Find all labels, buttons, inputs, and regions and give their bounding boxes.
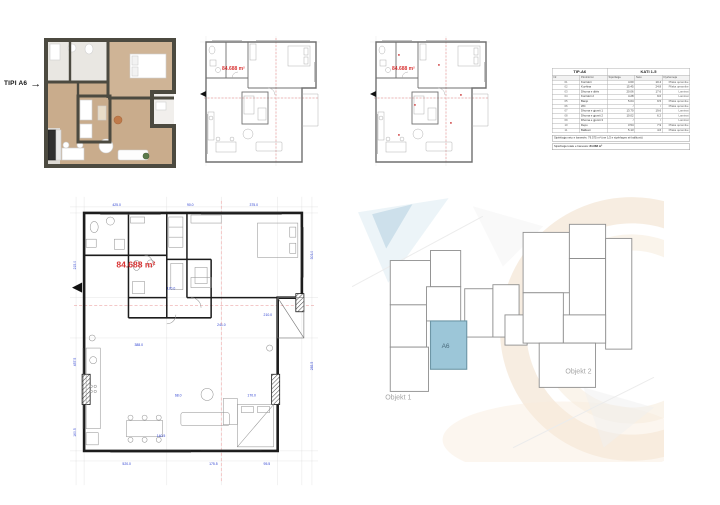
dimension-label: 425.0 bbox=[112, 203, 121, 207]
cad-plan-large-svg: 425.0 90.0 375.0 215.0 457.5 160.5 303.0… bbox=[70, 196, 318, 486]
render-3d-svg bbox=[42, 36, 178, 170]
dimension-label: 140.5 bbox=[157, 434, 166, 438]
unit-a6-highlight[interactable]: A6 bbox=[431, 321, 467, 369]
wall-piers bbox=[82, 294, 304, 405]
spec-table-cell: 11 bbox=[552, 128, 580, 133]
cad-plan-small-2-svg: 84.688 m² bbox=[368, 34, 492, 170]
grid-lines bbox=[70, 197, 318, 485]
entrance-arrow-icon bbox=[72, 283, 82, 293]
spec-title-kati: KATI 1-5 bbox=[607, 68, 690, 75]
cad-plan-small-2: 84.688 m² bbox=[368, 34, 492, 170]
spec-title-tip: TIP-A6 bbox=[552, 68, 607, 75]
dimension-label: 303.0 bbox=[310, 251, 314, 260]
arrow-right-icon: → bbox=[30, 81, 41, 87]
cad-plan-small-1-svg: 84.688 m² bbox=[198, 34, 322, 170]
note-net-area: Sipërfaqja neto e banesës: 79.575 m² (me… bbox=[552, 135, 690, 142]
dimension-label: 95.5 bbox=[264, 462, 271, 466]
dimension-label: 457.5 bbox=[73, 358, 77, 367]
objekt-1-label: Objekt 1 bbox=[385, 394, 411, 401]
spec-table-row: 11Ballkoni5.134.6Pllaka qeramike bbox=[552, 128, 690, 133]
dimension-label: 170.0 bbox=[247, 393, 256, 397]
unit-a6-label: A6 bbox=[442, 343, 450, 350]
dimension-label: 375.0 bbox=[249, 203, 258, 207]
objekt-2-label: Objekt 2 bbox=[565, 368, 591, 375]
note-total-label: Sipërfaqja totale e banesës: bbox=[554, 145, 589, 148]
spec-table-title-row: TIP-A6 KATI 1-5 bbox=[552, 68, 690, 75]
note-total-value: 84.688 m² bbox=[589, 145, 602, 148]
spec-table: TIP-A6 KATI 1-5 Nr. Përshkrimi Sipërfaqj… bbox=[552, 68, 690, 150]
dimension-label: 175.5 bbox=[209, 462, 218, 466]
dimension-label: 520.0 bbox=[122, 462, 131, 466]
area-label-small-1: 84.688 m² bbox=[222, 66, 245, 72]
spec-table-cell: 5.13 bbox=[607, 128, 635, 133]
dimension-label: 160.5 bbox=[73, 428, 77, 437]
dimension-label: 215.0 bbox=[73, 261, 77, 270]
spec-table-cell: 4.6 bbox=[635, 128, 663, 133]
spec-table-body: 01Korridori4.6010.4Pllaka qeramike02Kuzh… bbox=[552, 80, 690, 133]
dimension-label: 241.0 bbox=[217, 323, 226, 327]
dimension-label: 90.0 bbox=[187, 203, 194, 207]
spec-table-cell: Pllaka qeramike bbox=[662, 128, 690, 133]
windows bbox=[83, 212, 303, 452]
note-net-area-text: Sipërfaqja neto e banesës: 79.575 m² (me… bbox=[554, 137, 643, 140]
dimension-label: 120.0 bbox=[167, 287, 176, 291]
site-plan: A6 Objekt 1 Objekt 2 bbox=[352, 196, 664, 462]
cad-plan-large: 425.0 90.0 375.0 215.0 457.5 160.5 303.0… bbox=[70, 196, 318, 486]
floorplan-sheet: TIPI A6 → bbox=[0, 0, 720, 505]
render-3d-plan bbox=[42, 36, 178, 170]
dimension-label: 283.5 bbox=[310, 362, 314, 371]
area-label-small-2: 84.688 m² bbox=[392, 66, 415, 72]
site-plan-svg: A6 Objekt 1 Objekt 2 bbox=[352, 196, 664, 462]
area-label-large: 84.688 m² bbox=[116, 259, 155, 269]
spec-table-cell: Ballkoni bbox=[580, 128, 608, 133]
dimension-label: 388.0 bbox=[135, 343, 144, 347]
objekt-2-units bbox=[523, 224, 632, 387]
connector-units bbox=[465, 285, 527, 345]
cad-plan-small-1: 84.688 m² bbox=[198, 34, 322, 170]
tip-label-text: TIPI A6 bbox=[4, 80, 27, 87]
note-total-area: Sipërfaqja totale e banesës: 84.688 m² bbox=[552, 144, 690, 151]
dimension-label: 210.0 bbox=[264, 313, 273, 317]
dimension-label: 68.0 bbox=[175, 393, 182, 397]
walls bbox=[84, 213, 302, 451]
furniture bbox=[86, 215, 298, 447]
